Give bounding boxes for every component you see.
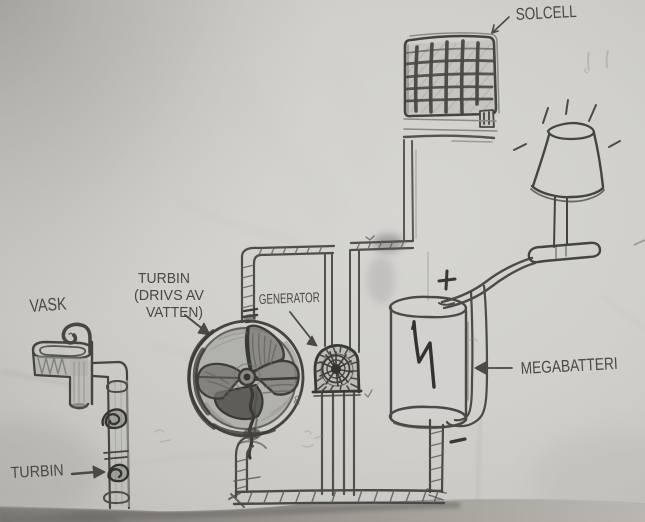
svg-text:VASK: VASK (29, 293, 67, 316)
svg-text:TURBIN: TURBIN (10, 462, 64, 482)
svg-text:VATTEN): VATTEN) (146, 304, 203, 321)
svg-text:GENERATOR: GENERATOR (259, 289, 321, 307)
svg-text:SOLCELL: SOLCELL (515, 2, 577, 24)
svg-text:(DRIVS AV: (DRIVS AV (134, 287, 204, 304)
svg-text:TURBIN: TURBIN (138, 270, 190, 287)
